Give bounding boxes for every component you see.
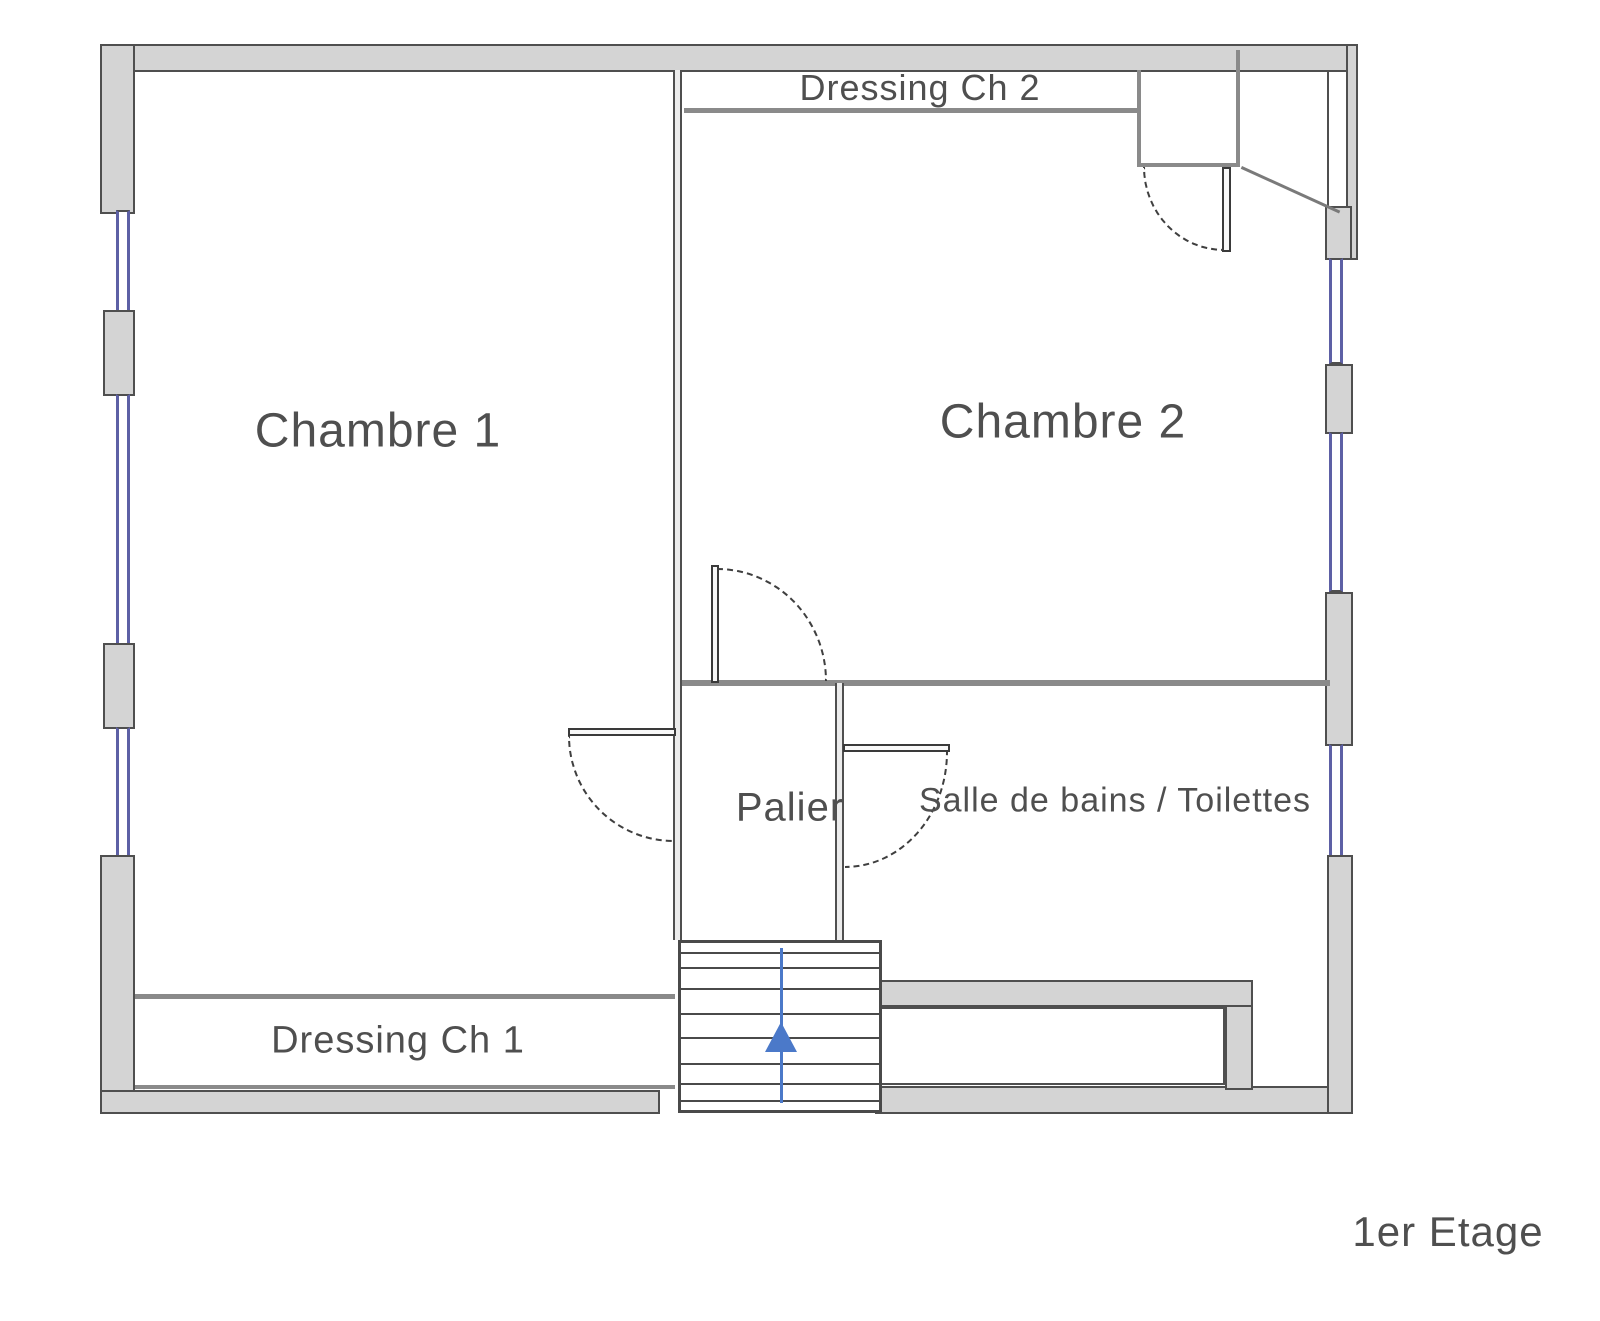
window-left-upper — [116, 210, 130, 312]
exterior-wall-bottom-left — [100, 1090, 660, 1114]
window-left-middle — [116, 394, 130, 645]
interior-wall-dressing-ch1-top — [135, 994, 675, 999]
wall-pier-right-large — [1325, 592, 1353, 746]
exterior-wall-top — [100, 44, 1358, 72]
exterior-wall-left-upper — [100, 44, 135, 214]
closet-wall-inner — [1236, 50, 1240, 167]
room-label-salle-de-bains: Salle de bains / Toilettes — [919, 782, 1311, 821]
wall-pier-right-top — [1325, 206, 1352, 260]
wall-pier-right-upper — [1325, 364, 1353, 434]
chambre1-door-leaf — [568, 728, 676, 736]
interior-wall-dressing-ch1-bottom — [135, 1085, 675, 1089]
wall-pier-left-upper — [103, 310, 135, 396]
bathroom-lower-void — [877, 1007, 1225, 1085]
floor-label: 1er Etage — [1352, 1208, 1543, 1256]
closet-door-swing-arc — [1143, 167, 1224, 251]
chambre2-door-swing-arc — [717, 568, 827, 681]
window-right-upper — [1329, 258, 1343, 364]
window-right-lower — [1329, 744, 1343, 857]
interior-wall-central — [673, 70, 682, 940]
window-left-lower — [116, 727, 130, 857]
room-label-dressing-ch1: Dressing Ch 1 — [271, 1020, 525, 1063]
exterior-wall-left-lower — [100, 855, 135, 1114]
room-label-chambre2: Chambre 2 — [940, 395, 1186, 450]
closet-diagonal-wall — [1241, 166, 1341, 214]
room-label-chambre1: Chambre 1 — [255, 404, 501, 459]
closet-wall-left — [1137, 70, 1141, 167]
exterior-wall-right-lower — [1327, 855, 1353, 1114]
exterior-wall-bottom-right — [875, 1086, 1353, 1114]
room-label-dressing-ch2: Dressing Ch 2 — [799, 67, 1040, 109]
bathroom-door-leaf — [843, 744, 950, 752]
window-right-middle — [1329, 432, 1343, 592]
floor-plan: Chambre 1 Chambre 2 Palier Salle de bain… — [0, 0, 1600, 1321]
chambre1-door-swing-arc — [568, 736, 674, 842]
bathroom-lower-wall-band — [875, 980, 1253, 1007]
stairs — [678, 940, 882, 1113]
stairs-direction-up-arrow-icon — [765, 1022, 797, 1052]
room-label-palier: Palier — [736, 786, 844, 831]
closet-hollow-wall — [1327, 70, 1348, 210]
bathroom-lower-wall-connector — [1225, 1005, 1253, 1090]
wall-pier-left-lower — [103, 643, 135, 729]
